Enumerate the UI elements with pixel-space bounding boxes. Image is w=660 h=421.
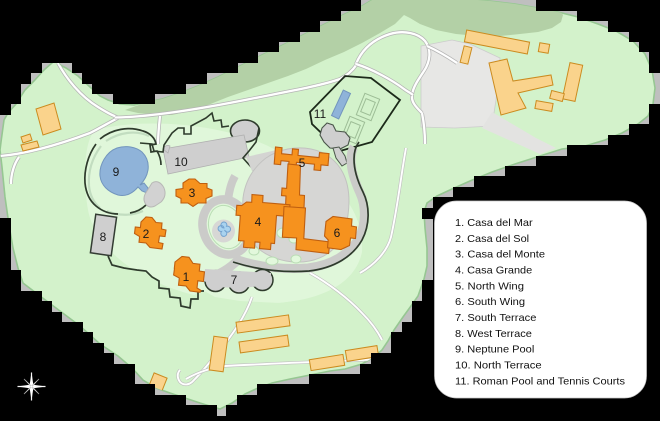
svg-text:7: 7	[231, 273, 238, 287]
svg-text:5. North Wing: 5. North Wing	[455, 280, 524, 292]
svg-text:11: 11	[314, 107, 327, 121]
svg-text:10: 10	[174, 155, 188, 169]
svg-text:4. Casa Grande: 4. Casa Grande	[455, 265, 532, 277]
svg-text:6. South Wing: 6. South Wing	[455, 296, 525, 308]
svg-text:3: 3	[189, 186, 196, 200]
svg-text:11. Roman Pool and Tennis Cour: 11. Roman Pool and Tennis Courts	[455, 375, 625, 387]
svg-text:9. Neptune Pool: 9. Neptune Pool	[455, 344, 534, 356]
svg-text:1: 1	[183, 270, 190, 284]
svg-text:2: 2	[143, 227, 150, 241]
svg-text:4: 4	[255, 215, 262, 229]
svg-text:9: 9	[113, 165, 120, 179]
svg-text:10. North Terrace: 10. North Terrace	[455, 360, 542, 372]
svg-text:5: 5	[299, 156, 306, 170]
svg-text:8: 8	[100, 230, 107, 244]
svg-text:8. West Terrace: 8. West Terrace	[455, 328, 532, 340]
svg-text:2. Casa del Sol: 2. Casa del Sol	[455, 233, 529, 245]
svg-text:7. South Terrace: 7. South Terrace	[455, 312, 537, 324]
svg-text:6: 6	[334, 226, 341, 240]
svg-text:1. Casa del Mar: 1. Casa del Mar	[455, 217, 533, 229]
svg-text:3. Casa del Monte: 3. Casa del Monte	[455, 249, 545, 261]
